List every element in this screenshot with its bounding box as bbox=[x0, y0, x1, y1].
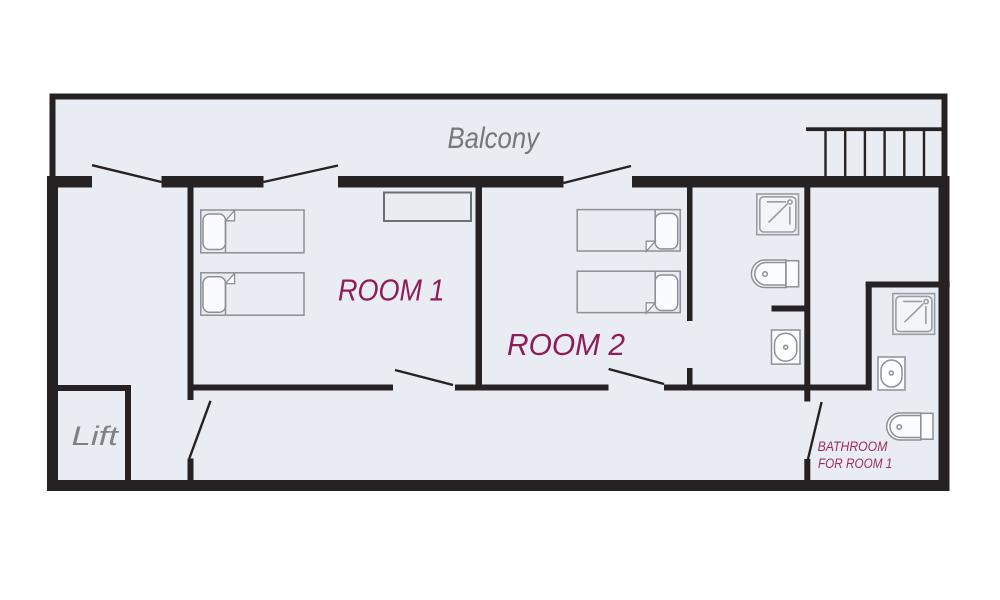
svg-text:Lift: Lift bbox=[72, 421, 120, 451]
svg-text:Balcony: Balcony bbox=[448, 122, 541, 155]
svg-text:BATHROOM: BATHROOM bbox=[818, 439, 888, 454]
svg-text:FOR ROOM 1: FOR ROOM 1 bbox=[818, 456, 892, 471]
svg-text:ROOM 2: ROOM 2 bbox=[507, 327, 625, 362]
svg-text:ROOM 1: ROOM 1 bbox=[338, 273, 445, 308]
